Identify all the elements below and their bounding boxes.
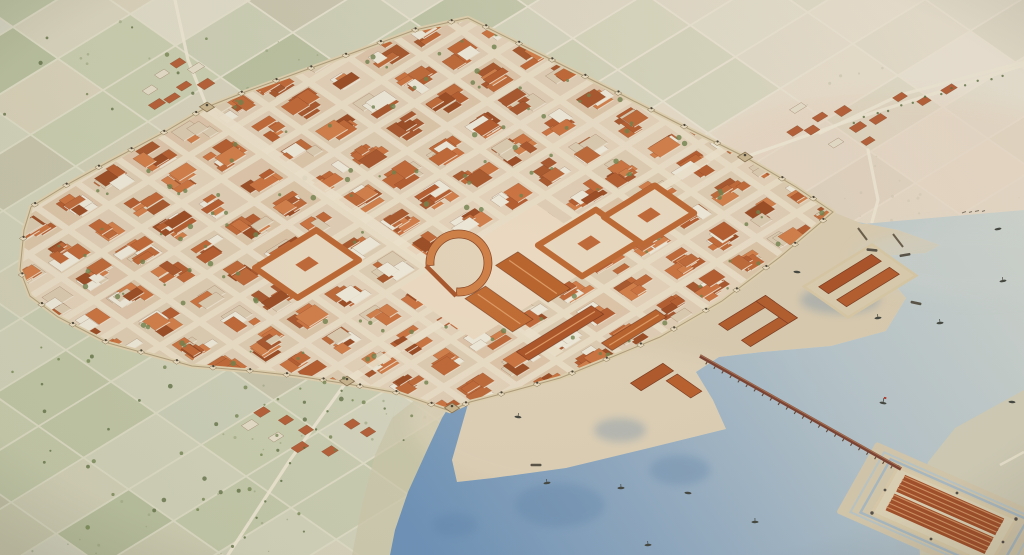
photo-vignette — [0, 0, 1024, 555]
roman-city-painting — [0, 0, 1024, 555]
painting-canvas — [0, 0, 1024, 555]
